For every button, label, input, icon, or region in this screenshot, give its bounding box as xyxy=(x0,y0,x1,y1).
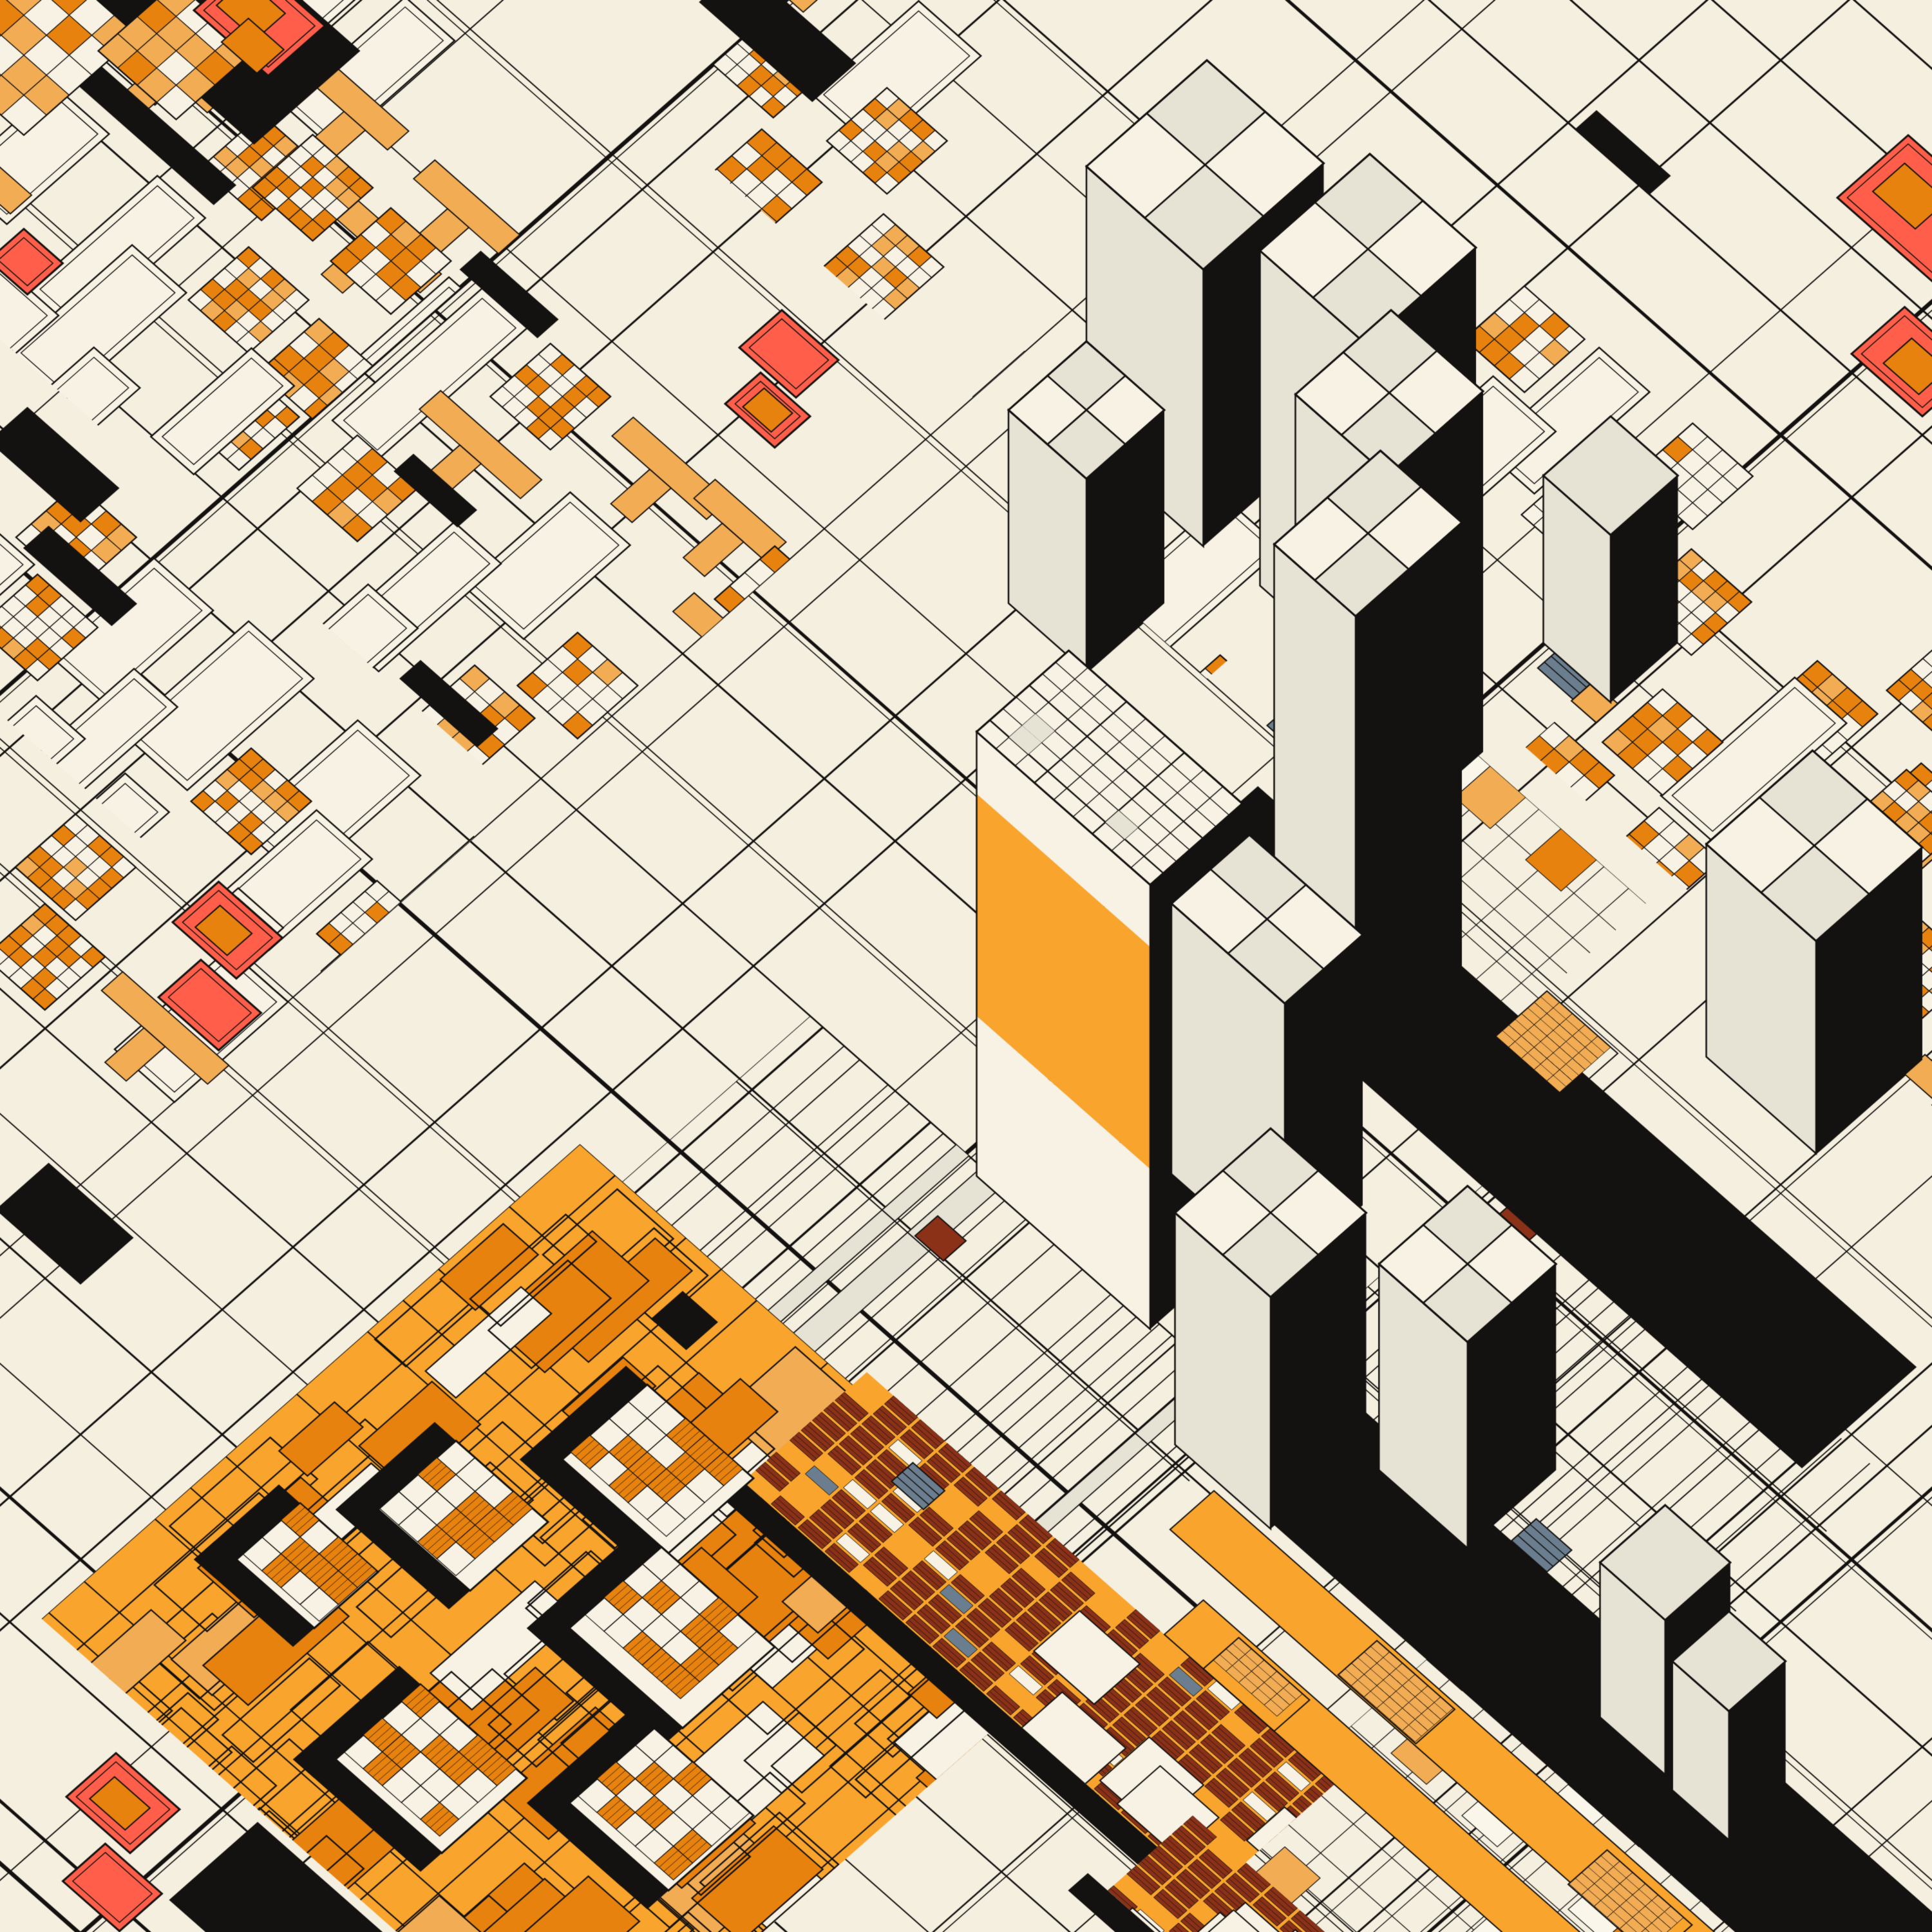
artwork-canvas xyxy=(0,0,1932,1932)
generative-iso-city-artwork xyxy=(0,0,1932,1932)
